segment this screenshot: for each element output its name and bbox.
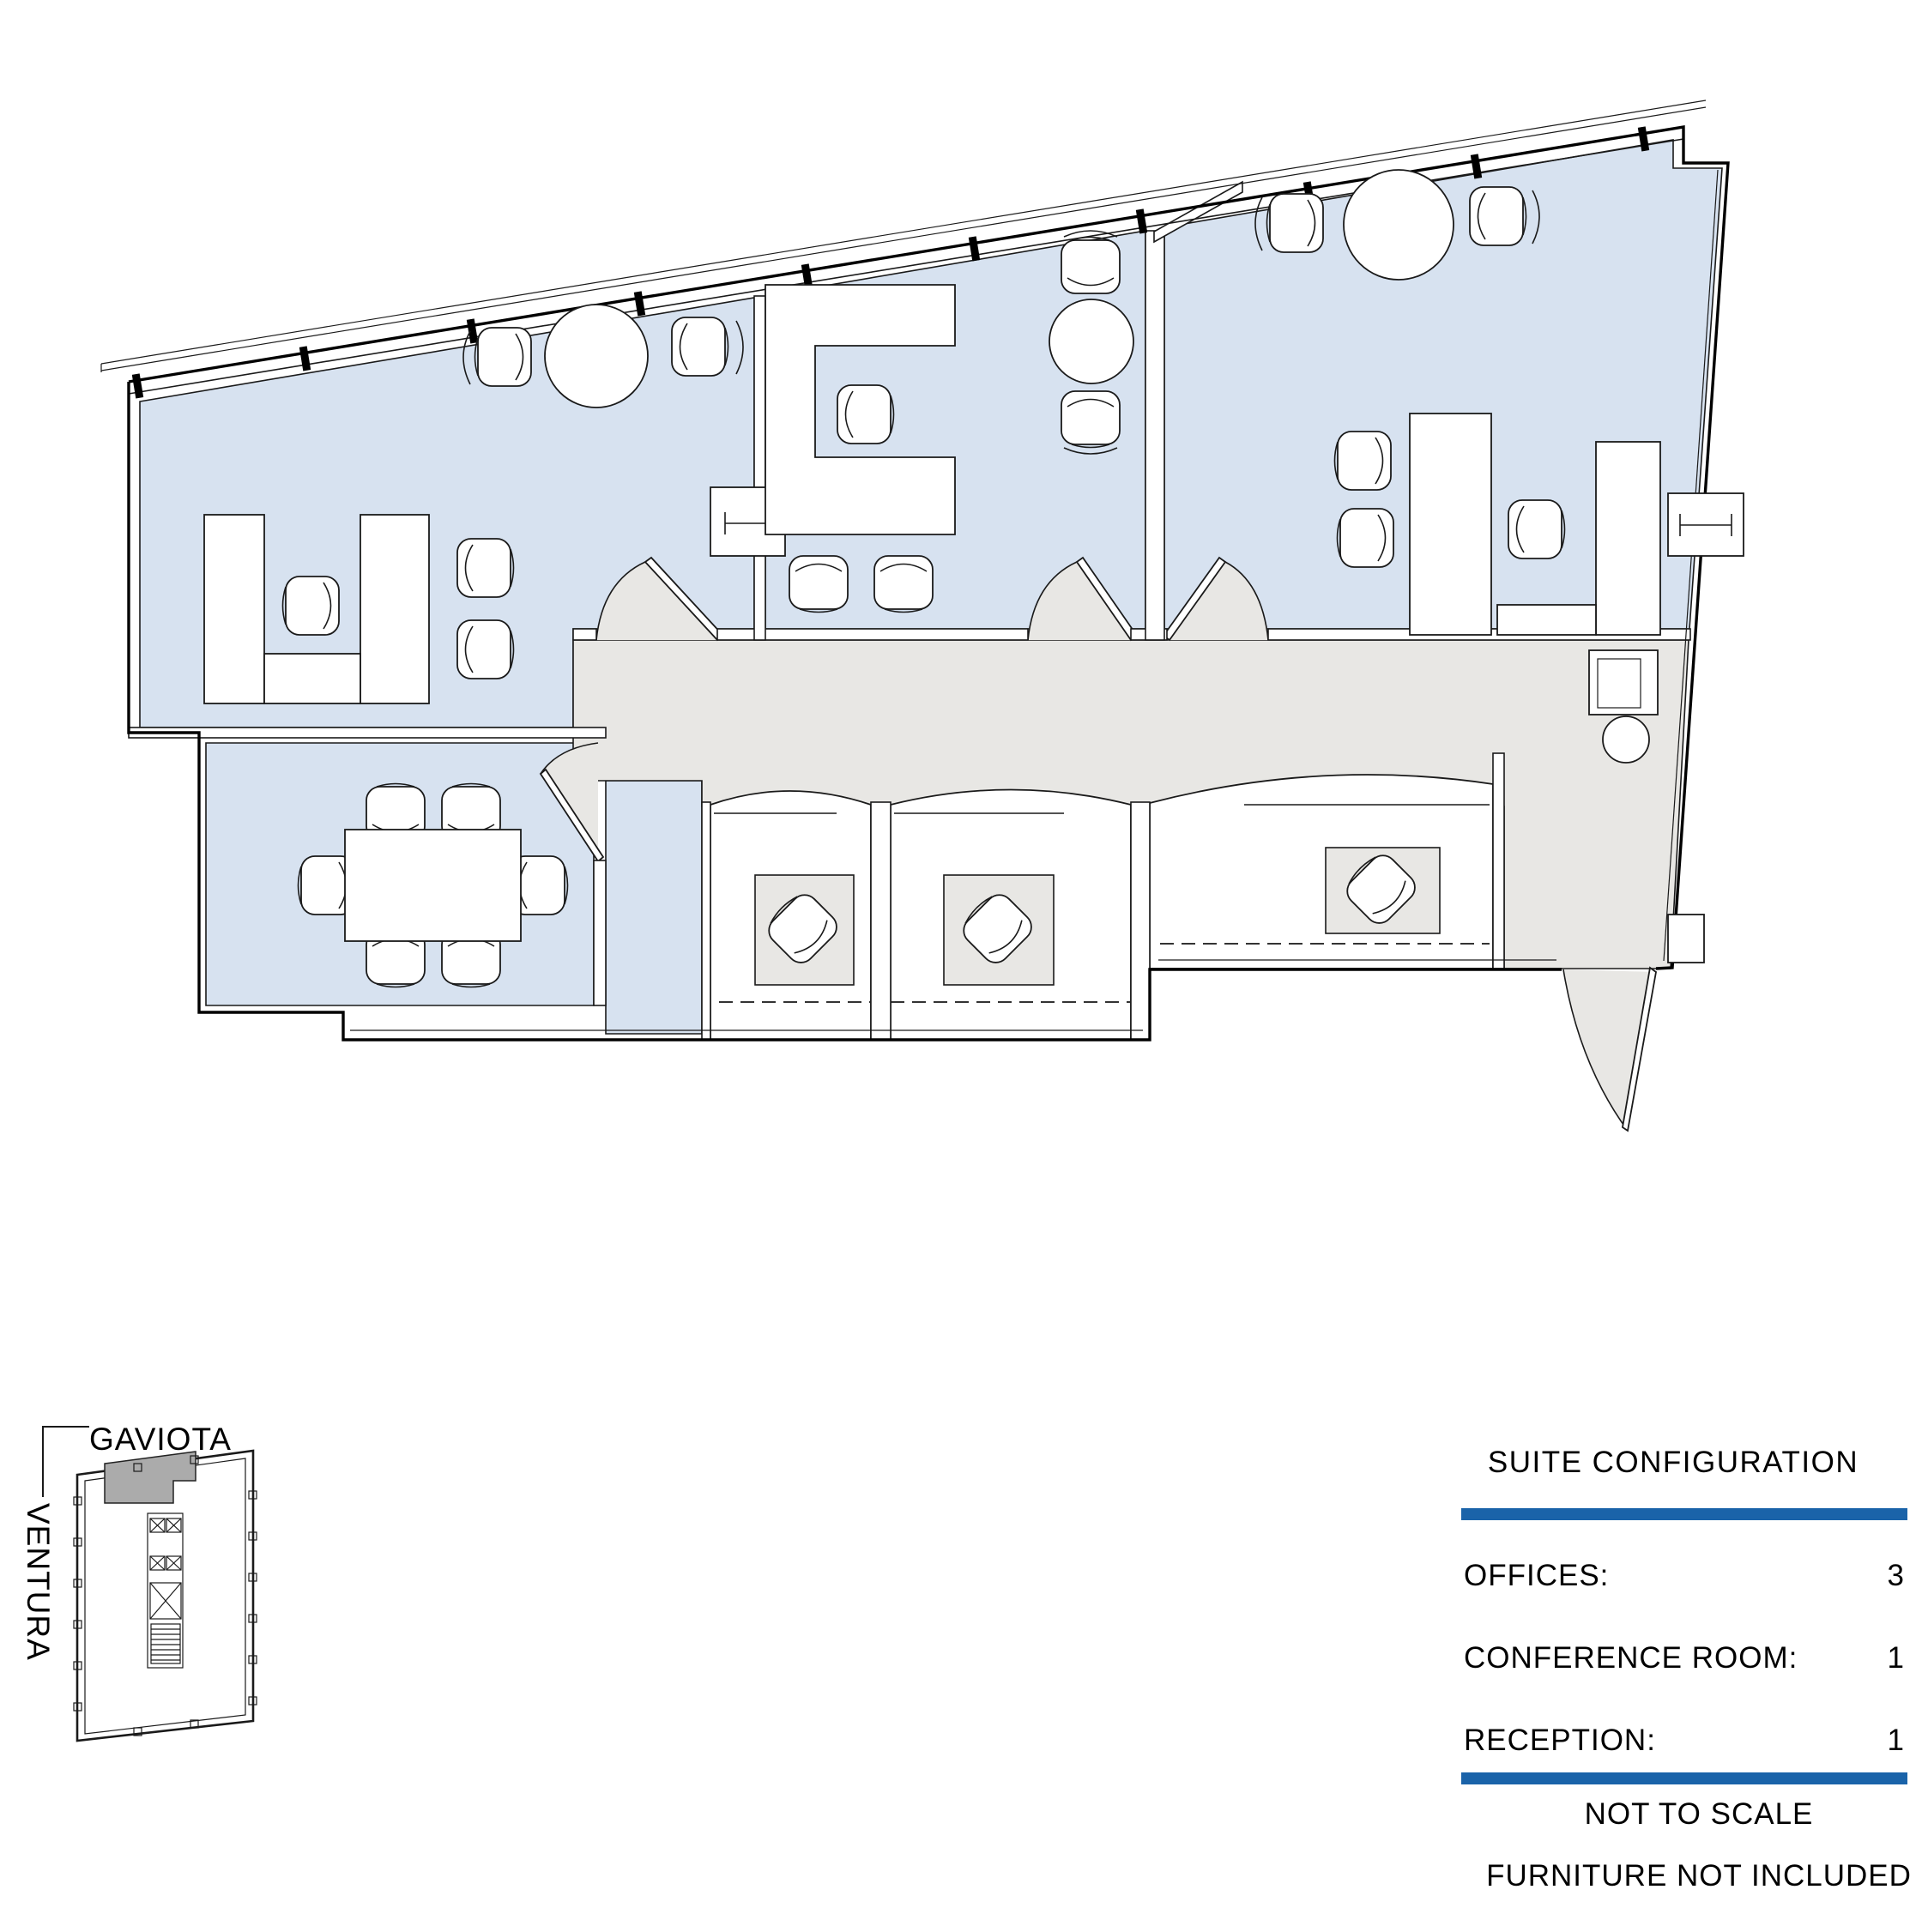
wall-office2-office3 xyxy=(1145,231,1164,640)
chair-icon xyxy=(1470,187,1526,245)
corridor-top-wall xyxy=(573,629,596,640)
panel-footnote: FURNITURE NOT INCLUDED xyxy=(1486,1859,1912,1893)
wall-office1-office2 xyxy=(754,296,765,640)
workstation-bay-3-floor xyxy=(1150,775,1493,969)
wall-bay1-left xyxy=(702,802,710,1040)
side-table xyxy=(1589,650,1658,715)
panel-title: SUITE CONFIGURATION xyxy=(1488,1446,1859,1479)
desk xyxy=(1497,605,1596,635)
panel-footnote: NOT TO SCALE xyxy=(1585,1797,1814,1831)
guest-chair-icon xyxy=(1335,432,1392,490)
config-row-value: 1 xyxy=(1888,1724,1905,1757)
config-row-label: RECEPTION: xyxy=(1464,1724,1656,1757)
divider-bar-top xyxy=(1461,1508,1907,1520)
key-plan: GAVIOTA VENTURA xyxy=(21,1422,257,1741)
right-wall-box xyxy=(1668,915,1704,963)
chair-icon xyxy=(672,317,728,376)
config-row-label: CONFERENCE ROOM: xyxy=(1464,1641,1798,1675)
suite-floor-plan xyxy=(101,100,1744,1131)
guest-chair-icon xyxy=(874,556,933,613)
guest-chair-icon xyxy=(789,556,848,613)
divider-bar-bottom xyxy=(1461,1772,1907,1784)
wall-bay2-bay3 xyxy=(1131,802,1150,1040)
stool xyxy=(1603,716,1649,763)
chair-icon xyxy=(1061,238,1120,294)
office-chair-icon xyxy=(283,577,340,635)
wall-bay3-reception xyxy=(1493,753,1504,969)
desk xyxy=(1410,414,1491,635)
street-label-side: VENTURA xyxy=(21,1503,56,1661)
round-table xyxy=(1049,299,1133,383)
side-room-strip xyxy=(606,781,702,1034)
conference-table xyxy=(345,830,521,941)
chair-icon xyxy=(1267,194,1324,252)
guest-chair-icon xyxy=(457,539,514,597)
office-chair-icon xyxy=(1508,500,1565,558)
config-row-label: OFFICES: xyxy=(1464,1559,1609,1592)
desk xyxy=(204,515,264,703)
guest-chair-icon xyxy=(1338,509,1394,567)
config-row-value: 1 xyxy=(1888,1641,1905,1675)
guest-chair-icon xyxy=(457,620,514,679)
wall-bay1-bay2 xyxy=(871,802,891,1040)
round-table xyxy=(545,305,648,408)
tag-box-right xyxy=(1668,493,1744,556)
door-suite-entry xyxy=(1563,968,1656,1131)
office-chair-icon xyxy=(837,385,894,444)
chair-icon xyxy=(1061,391,1120,448)
street-label-top: GAVIOTA xyxy=(89,1422,232,1457)
suite-configuration-panel: SUITE CONFIGURATION OFFICES: 3 CONFERENC… xyxy=(1461,1446,1912,1893)
desk xyxy=(360,515,429,703)
floorplan-flyer: GAVIOTA VENTURA SUITE CONFIGURATION OFFI… xyxy=(0,0,1922,1932)
desk xyxy=(264,654,360,703)
config-row-value: 3 xyxy=(1888,1559,1905,1592)
desk xyxy=(1596,442,1660,635)
round-table xyxy=(1344,170,1454,280)
wall-conference-right xyxy=(594,860,606,1005)
chair-icon xyxy=(475,328,532,386)
